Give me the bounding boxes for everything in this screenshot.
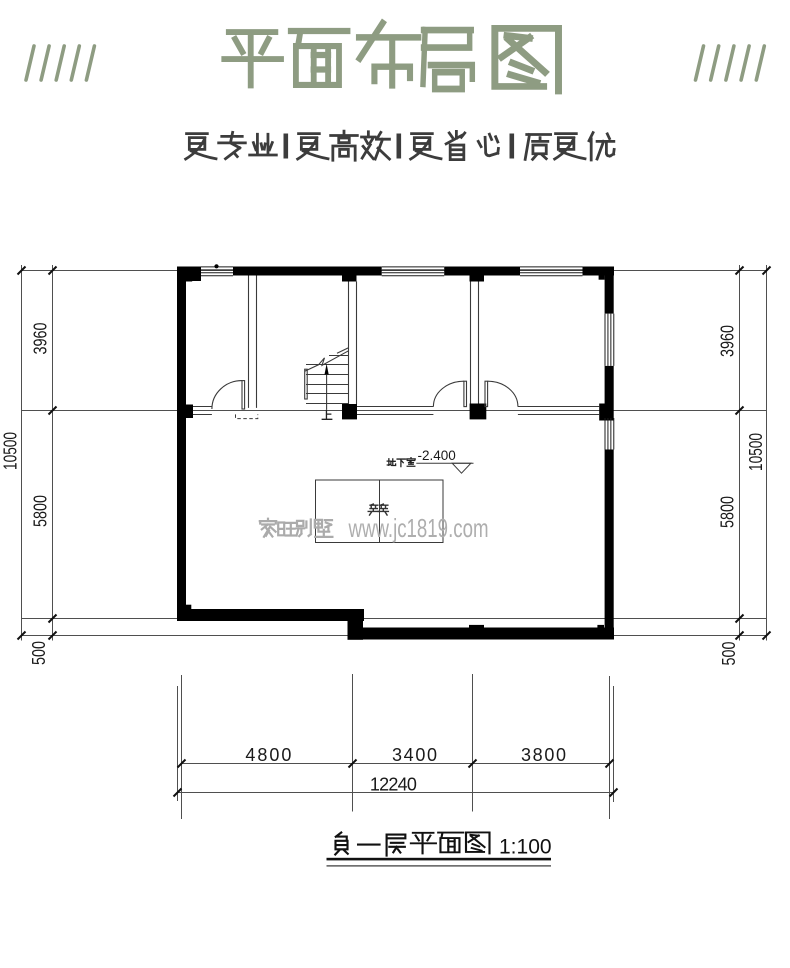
svg-text:5800: 5800	[718, 496, 738, 528]
svg-text:www.jc1819.com: www.jc1819.com	[348, 513, 489, 543]
svg-text:10500: 10500	[1, 432, 21, 470]
svg-text:500: 500	[719, 642, 739, 666]
svg-text:1:100: 1:100	[499, 836, 552, 859]
svg-text:3960: 3960	[31, 323, 51, 355]
svg-text:3800: 3800	[521, 745, 566, 765]
svg-text:5800: 5800	[31, 495, 51, 527]
svg-text:3960: 3960	[718, 325, 738, 357]
svg-text:-2.400: -2.400	[418, 448, 456, 463]
svg-text:500: 500	[29, 641, 49, 665]
svg-text:3400: 3400	[392, 745, 437, 765]
svg-text:12240: 12240	[370, 775, 417, 795]
svg-text:4800: 4800	[245, 745, 291, 765]
svg-text:10500: 10500	[746, 433, 766, 471]
